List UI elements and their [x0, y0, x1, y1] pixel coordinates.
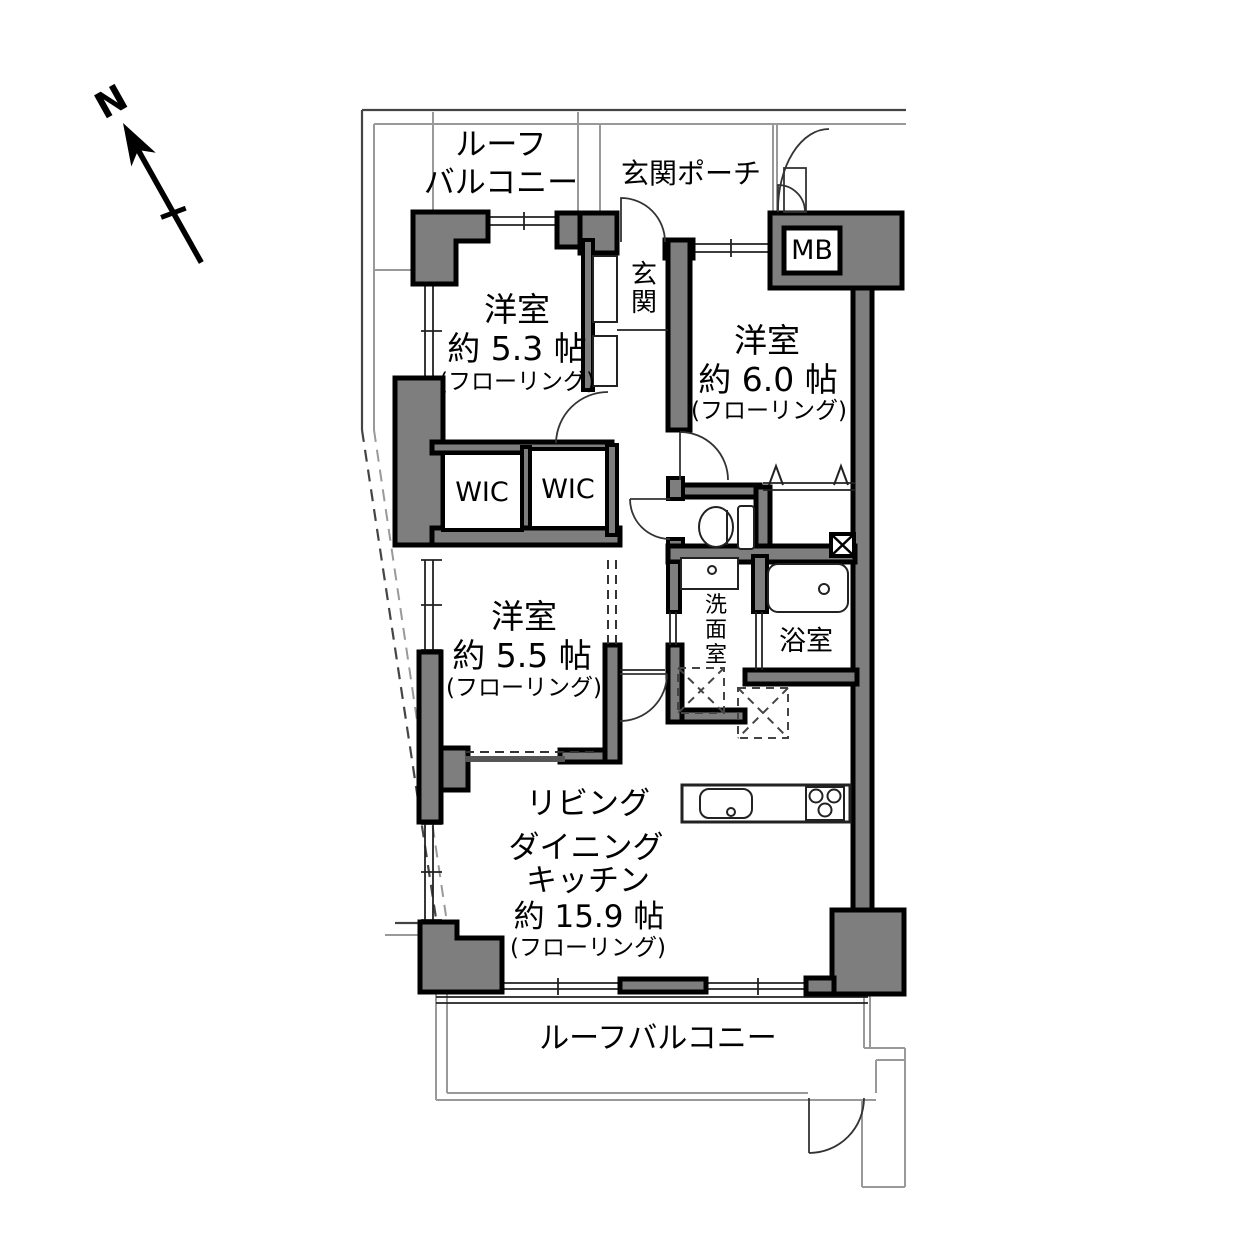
bedroom53-size: 約 5.3 帖 [447, 329, 586, 368]
ldk-label-2: ダイニング [509, 830, 664, 866]
bedroom55-name: 洋室 [491, 597, 557, 636]
shoe-cabinet-icons [593, 256, 617, 386]
entrance-porch-label: 玄関ポーチ [621, 157, 761, 190]
bedroom60-name: 洋室 [734, 321, 800, 360]
bedroom55-size: 約 5.5 帖 [452, 636, 591, 675]
porch-door-arc [778, 129, 829, 210]
roof-balcony-bottom-label: ルーフバルコニー [539, 1021, 777, 1056]
north-label: N [88, 77, 134, 128]
bathtub-icon [768, 564, 848, 612]
kitchen-sink-icon [700, 789, 752, 818]
ldk-size: 約 15.9 帖 [514, 899, 665, 935]
balcony-gate-arc [809, 1098, 864, 1153]
wic-right-label: WIC [541, 474, 595, 505]
entrance-door-arc [621, 198, 665, 242]
kitchen-counter [682, 785, 850, 822]
toilet-door-arc [630, 499, 670, 539]
ldk-door-arc [620, 674, 667, 721]
washroom-label: 洗面室 [705, 593, 727, 668]
bedroom53-floor: (フローリング) [439, 369, 595, 395]
vanity-sink-icon [681, 558, 738, 589]
pipe-space-box [831, 534, 854, 556]
toilet-icon [699, 506, 754, 549]
roof-balcony-top-label-2: バルコニー [424, 165, 578, 201]
bedroom53-name: 洋室 [484, 290, 550, 329]
ldk-label-1: リビング [526, 786, 650, 822]
wic-left-label: WIC [455, 477, 509, 508]
floor-plan-page: N ルーフ バルコニー 玄関ポーチ MB 玄関 洋室 約 5.3 帖 (フローリ… [0, 0, 1252, 1252]
bedroom60-door-arc [680, 432, 728, 480]
meter-box-door-arc [778, 185, 805, 212]
bedroom55-floor: (フローリング) [446, 675, 602, 701]
roof-balcony-top-label-1: ルーフ [455, 127, 546, 163]
bedroom60-size: 約 6.0 帖 [698, 360, 837, 399]
bedroom53-door-arc [556, 392, 608, 443]
ldk-label-3: キッチン [526, 863, 650, 899]
bedroom60-floor: (フローリング) [691, 398, 847, 424]
washer-space-box [678, 668, 724, 713]
floor-plan: N ルーフ バルコニー 玄関ポーチ MB 玄関 洋室 約 5.3 帖 (フローリ… [0, 0, 1252, 1252]
ldk-floor: (フローリング) [510, 935, 666, 961]
bathroom-label: 浴室 [779, 626, 833, 657]
north-arrow-icon: N [88, 77, 214, 270]
entrance-label: 玄関 [631, 260, 657, 318]
meter-box-label: MB [791, 235, 833, 266]
